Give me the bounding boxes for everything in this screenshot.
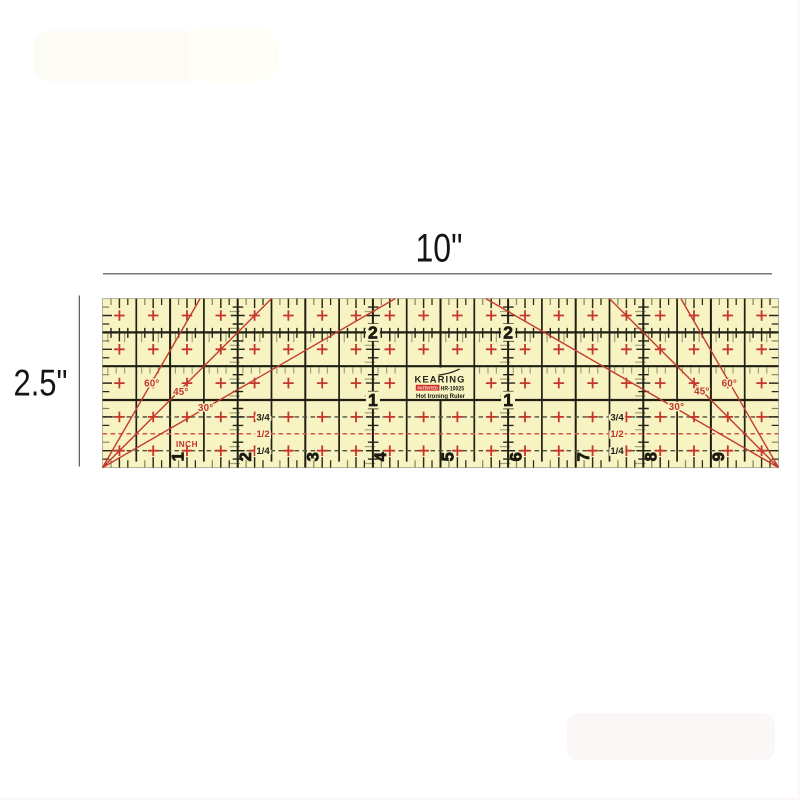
svg-text:9: 9 [710,452,728,461]
svg-text:10": 10" [416,227,463,271]
svg-text:45°: 45° [694,387,709,398]
svg-text:Hot Ironing Ruler: Hot Ironing Ruler [416,393,465,400]
svg-text:1/2: 1/2 [256,429,269,440]
svg-text:3: 3 [305,452,323,461]
svg-text:1: 1 [503,390,513,410]
svg-text:4: 4 [372,451,390,461]
svg-text:INCH: INCH [176,440,198,449]
svg-text:1: 1 [368,390,378,410]
svg-text:1/4: 1/4 [256,446,270,457]
svg-text:8: 8 [643,452,661,461]
svg-text:HR-10025: HR-10025 [441,386,465,393]
svg-text:5: 5 [440,452,458,461]
svg-text:PATENTED: PATENTED [417,385,438,390]
svg-text:7: 7 [575,452,593,461]
svg-text:2: 2 [237,452,255,461]
svg-text:30°: 30° [669,402,684,413]
svg-text:2: 2 [368,323,378,343]
svg-text:3/4: 3/4 [256,412,270,423]
svg-text:45°: 45° [173,387,188,398]
svg-text:30°: 30° [198,403,213,414]
svg-text:2.5": 2.5" [14,363,68,404]
svg-text:KEARING: KEARING [415,374,466,385]
svg-text:6: 6 [507,452,525,461]
svg-text:60°: 60° [722,379,737,390]
svg-text:1/4: 1/4 [610,446,624,457]
svg-text:60°: 60° [144,379,159,390]
svg-text:1: 1 [169,452,187,461]
svg-text:3/4: 3/4 [610,412,624,423]
svg-text:2: 2 [503,323,513,343]
svg-text:1/2: 1/2 [610,429,623,440]
